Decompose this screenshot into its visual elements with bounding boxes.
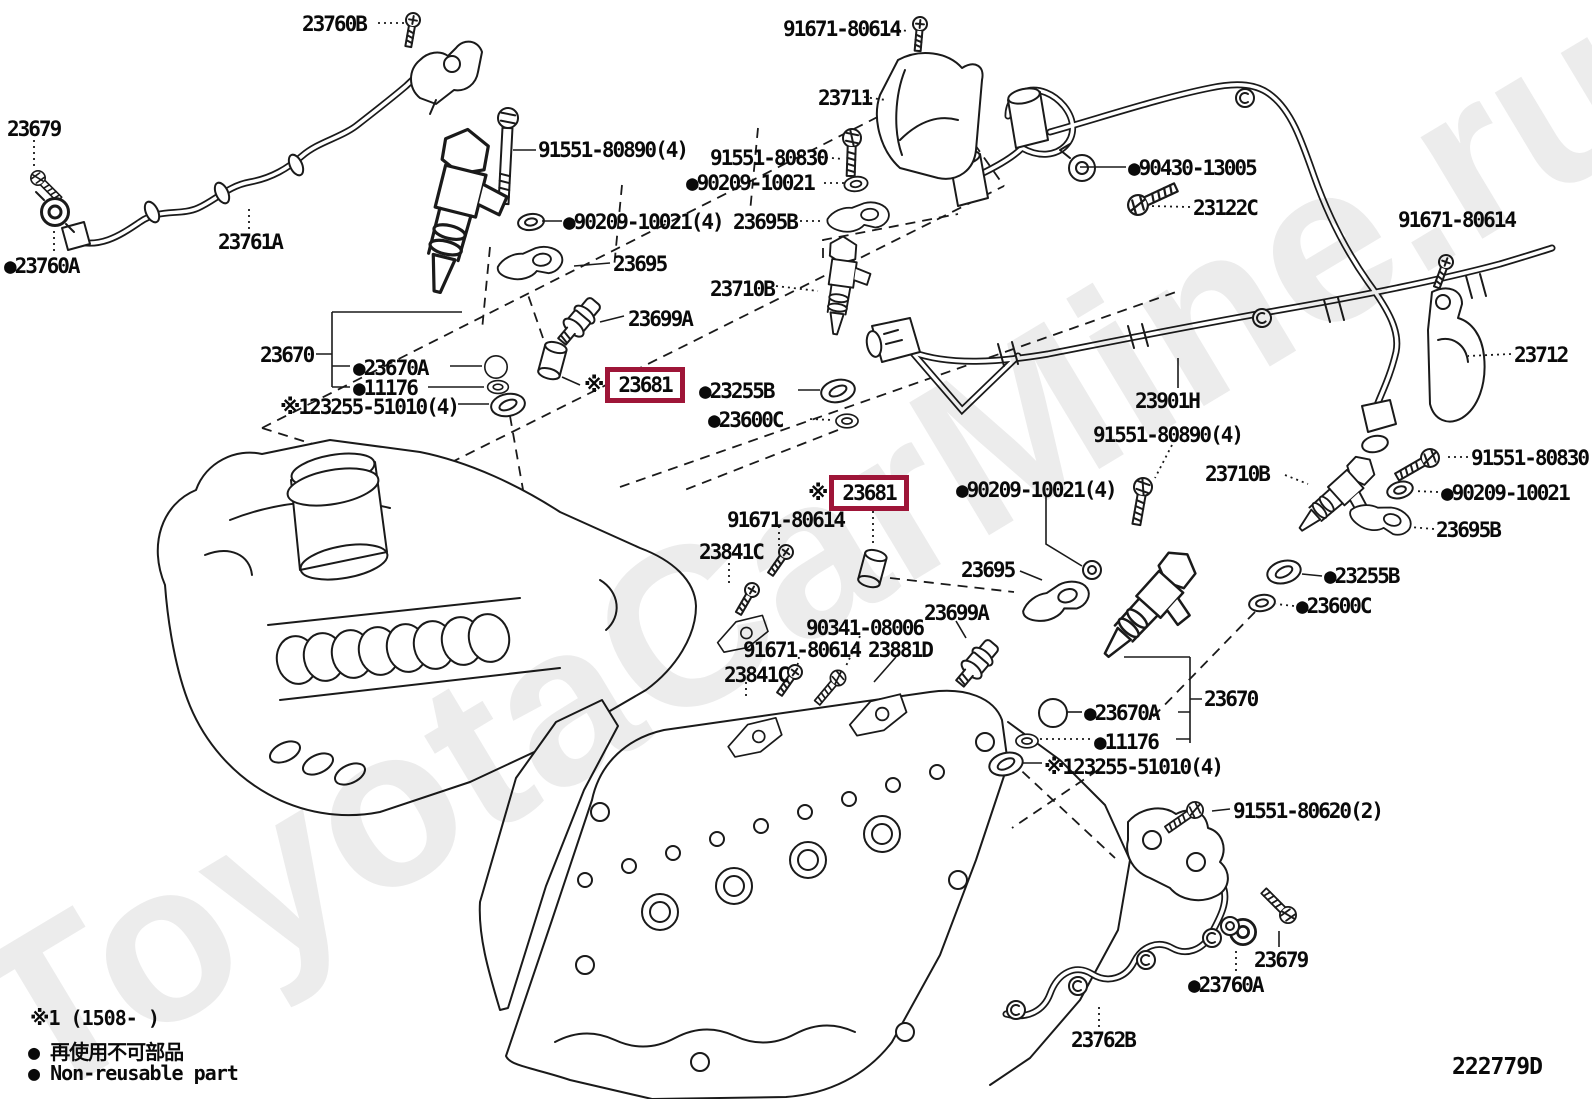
- part-label: ●11176: [1094, 730, 1158, 754]
- diagram-code: 222779D: [1452, 1054, 1542, 1080]
- reference-mark: ※: [584, 373, 602, 397]
- part-label: 91551-80890(4): [538, 138, 687, 162]
- part-label: 91671-80614: [1398, 208, 1515, 232]
- part-label: 91551-80620(2): [1233, 799, 1382, 823]
- highlighted-part-label: ※ 23681: [808, 475, 909, 511]
- part-label: 90341-08006: [806, 616, 923, 640]
- fuel-pipe-assembly: [865, 53, 1552, 455]
- part-label: 91671-80614: [783, 17, 900, 41]
- part-label: 23670: [260, 343, 313, 367]
- part-label: 23695: [961, 558, 1014, 582]
- part-label: 23695B: [733, 210, 797, 234]
- part-label: 23679: [7, 117, 60, 141]
- legend-nonreusable-en: ● Non-reusable part: [28, 1061, 238, 1085]
- wire-harness: [28, 42, 482, 250]
- part-label: 23695: [613, 252, 666, 276]
- part-label: 23122C: [1193, 196, 1257, 220]
- part-label: 23760B: [302, 12, 366, 36]
- highlight-box: 23681: [829, 475, 908, 511]
- part-label: 23695B: [1436, 518, 1500, 542]
- part-label: ●90209-10021(4): [563, 210, 723, 234]
- part-label: 23710B: [710, 277, 774, 301]
- part-label: 23841C: [699, 540, 763, 564]
- highlight-box: 23681: [605, 367, 684, 403]
- part-label: 23711: [818, 86, 871, 110]
- part-label: ●23760A: [4, 254, 79, 278]
- part-label: ●23255B: [1324, 564, 1399, 588]
- part-label: 91671-80614: [743, 638, 860, 662]
- part-label: ●90209-10021: [686, 171, 814, 195]
- parts-diagram-page: ToyotaCarMine.ru 23760B 91671-80614 2367…: [0, 0, 1592, 1099]
- part-label: 23699A: [628, 307, 692, 331]
- part-label: 23670: [1204, 687, 1257, 711]
- reference-mark: ※: [808, 481, 826, 505]
- part-label: ●23600C: [1296, 594, 1371, 618]
- part-label: 23679: [1254, 948, 1307, 972]
- valve-cover-lower: [480, 691, 1130, 1099]
- part-label: ●23255B: [699, 379, 774, 403]
- part-label: 23710B: [1205, 462, 1269, 486]
- part-label: 23712: [1514, 343, 1567, 367]
- part-label: ※123255-51010(4): [280, 395, 458, 419]
- part-label: ●90430-13005: [1128, 156, 1256, 180]
- part-label: 23901H: [1135, 389, 1199, 413]
- part-label: ●90209-10021: [1441, 481, 1569, 505]
- part-label: 91551-80890(4): [1093, 423, 1242, 447]
- part-label: ●23760A: [1188, 973, 1263, 997]
- legend-note-1: ※1 (1508- ): [30, 1006, 159, 1030]
- part-label: ●23600C: [708, 408, 783, 432]
- highlighted-part-label: ※ 23681: [584, 367, 685, 403]
- part-label: 91551-80830: [710, 146, 827, 170]
- part-label: 23761A: [218, 230, 282, 254]
- part-label: 23699A: [924, 601, 988, 625]
- part-label: 23881D: [868, 638, 932, 662]
- part-label: 91551-80830: [1471, 446, 1588, 470]
- part-label: ●23670A: [1084, 701, 1159, 725]
- part-label: ※123255-51010(4): [1044, 755, 1222, 779]
- part-label: ●90209-10021(4): [956, 478, 1116, 502]
- part-label: 23762B: [1071, 1028, 1135, 1052]
- part-label: 91671-80614: [727, 508, 844, 532]
- part-label: 23841C: [724, 663, 788, 687]
